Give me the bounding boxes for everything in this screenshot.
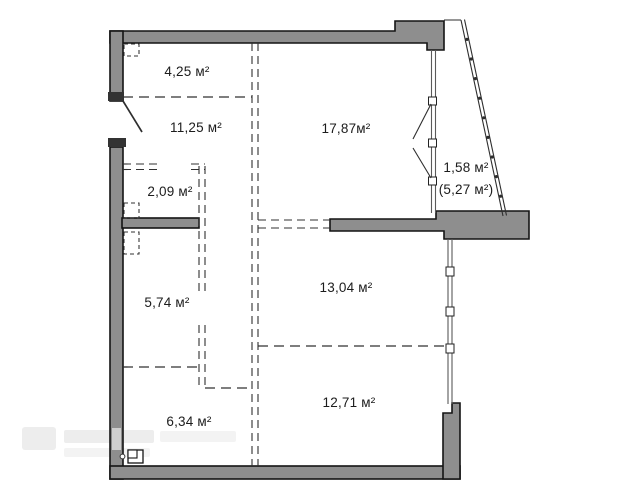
balcony-area-label-alt: (5,27 м²) [439, 182, 494, 197]
wall-stub-left [122, 218, 199, 228]
door-jamb-top [108, 92, 124, 101]
entrance-door-swing [123, 101, 142, 132]
room-area-label: 6,34 м² [166, 414, 212, 429]
wall-bottom [110, 466, 460, 479]
balcony-door-hinge [429, 139, 437, 147]
shaft-box [124, 44, 139, 56]
door-jamb-bottom [108, 138, 126, 147]
balcony-area-label: 1,58 м² [443, 160, 489, 175]
wall-mid-right-block [330, 211, 529, 239]
room-area-label: 11,25 м² [170, 120, 222, 135]
floor-plan-page: 4,25 м² 11,25 м² 17,87м² 2,09 м² 5,74 м²… [0, 0, 635, 493]
wall-niche [112, 428, 121, 450]
window-mullion [446, 267, 454, 276]
shaft-box [124, 232, 139, 254]
balcony-door-hinge [429, 97, 437, 105]
wall-top [110, 21, 444, 50]
wall-bottom-right-block [443, 403, 460, 479]
room-area-label: 13,04 м² [320, 280, 373, 295]
room-area-label: 4,25 м² [164, 64, 210, 79]
wall-left-upper [110, 31, 123, 101]
dashed-partitions [123, 43, 447, 466]
room-area-label: 17,87м² [322, 121, 371, 136]
room-area-label: 12,71 м² [323, 395, 376, 410]
walls [108, 21, 529, 479]
balcony-door-hinge [429, 177, 437, 185]
window-mullion [446, 344, 454, 353]
shaft-box [124, 203, 139, 218]
room-area-label: 2,09 м² [147, 184, 193, 199]
floor-plan-canvas: 4,25 м² 11,25 м² 17,87м² 2,09 м² 5,74 м²… [0, 0, 635, 493]
room-area-label: 5,74 м² [144, 295, 190, 310]
window-mullion [446, 307, 454, 316]
